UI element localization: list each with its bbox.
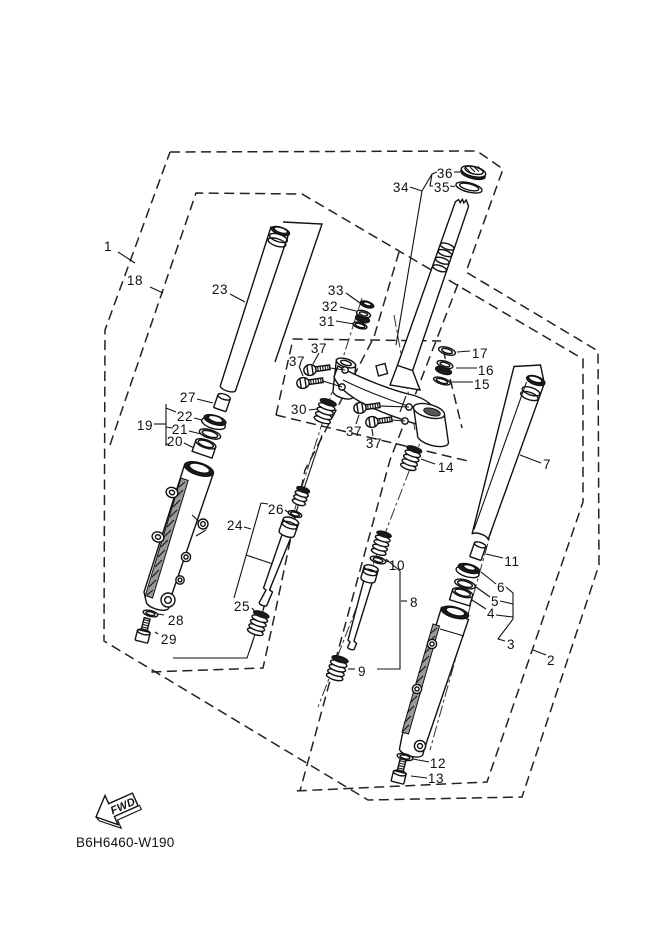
svg-text:37: 37 <box>346 424 362 439</box>
svg-text:15: 15 <box>474 377 490 392</box>
svg-text:12: 12 <box>430 756 446 771</box>
svg-text:13: 13 <box>428 771 444 786</box>
svg-text:29: 29 <box>161 632 177 647</box>
svg-text:10: 10 <box>389 558 405 573</box>
svg-text:23: 23 <box>212 282 228 297</box>
svg-text:4: 4 <box>487 606 495 621</box>
svg-text:11: 11 <box>504 554 519 569</box>
svg-text:30: 30 <box>291 402 307 417</box>
svg-text:18: 18 <box>127 273 143 288</box>
svg-text:24: 24 <box>227 518 243 533</box>
svg-text:B6H6460-W190: B6H6460-W190 <box>76 835 174 850</box>
svg-text:17: 17 <box>472 346 488 361</box>
svg-text:FWD: FWD <box>109 796 138 818</box>
svg-text:7: 7 <box>543 457 551 472</box>
svg-text:32: 32 <box>322 299 338 314</box>
svg-text:25: 25 <box>234 599 250 614</box>
svg-text:28: 28 <box>168 613 184 628</box>
svg-text:37: 37 <box>289 354 305 369</box>
svg-text:36: 36 <box>437 166 453 181</box>
svg-text:27: 27 <box>180 390 196 405</box>
svg-text:37: 37 <box>311 341 327 356</box>
svg-text:16: 16 <box>478 363 494 378</box>
svg-text:2: 2 <box>547 653 555 668</box>
svg-text:26: 26 <box>268 502 284 517</box>
svg-text:35: 35 <box>434 180 450 195</box>
svg-text:1: 1 <box>104 239 112 254</box>
svg-text:33: 33 <box>328 283 344 298</box>
svg-text:3: 3 <box>507 637 515 652</box>
svg-text:8: 8 <box>410 595 418 610</box>
svg-text:14: 14 <box>438 460 454 475</box>
svg-text:20: 20 <box>167 434 183 449</box>
svg-text:9: 9 <box>358 664 366 679</box>
svg-text:6: 6 <box>497 580 505 595</box>
svg-text:19: 19 <box>137 418 153 433</box>
svg-text:34: 34 <box>393 180 409 195</box>
svg-text:31: 31 <box>319 314 335 329</box>
svg-text:37: 37 <box>366 436 382 451</box>
